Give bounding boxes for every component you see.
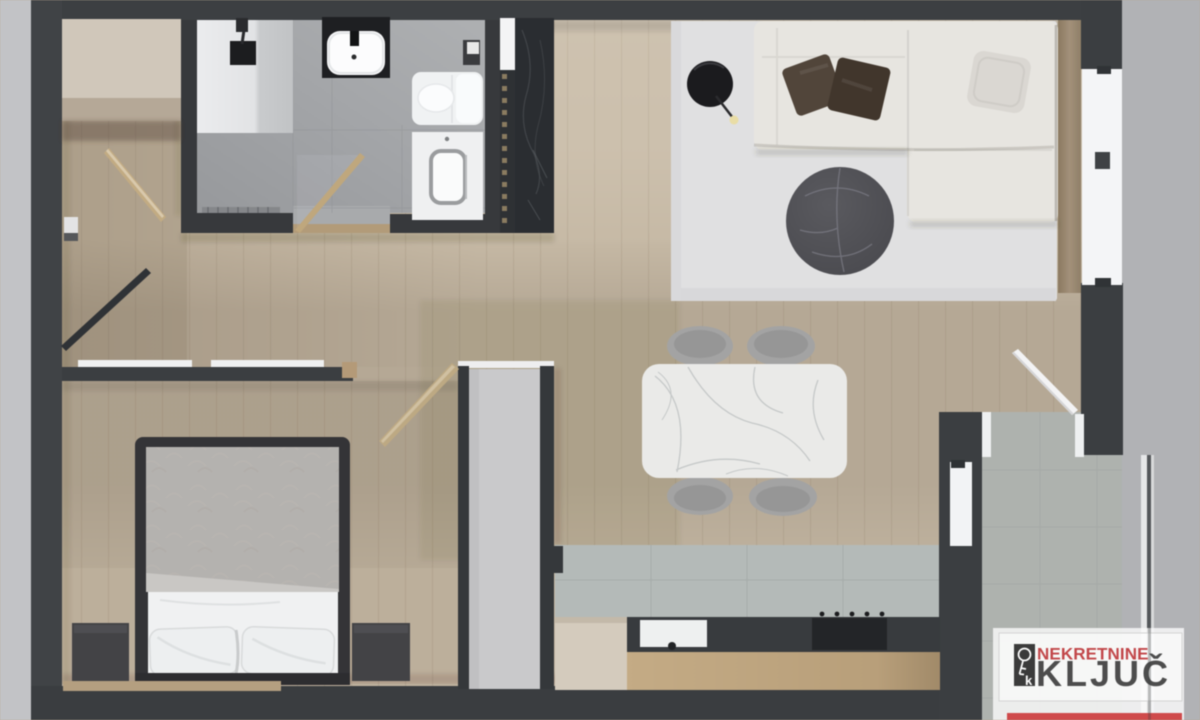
svg-text:k: k: [1025, 673, 1033, 688]
